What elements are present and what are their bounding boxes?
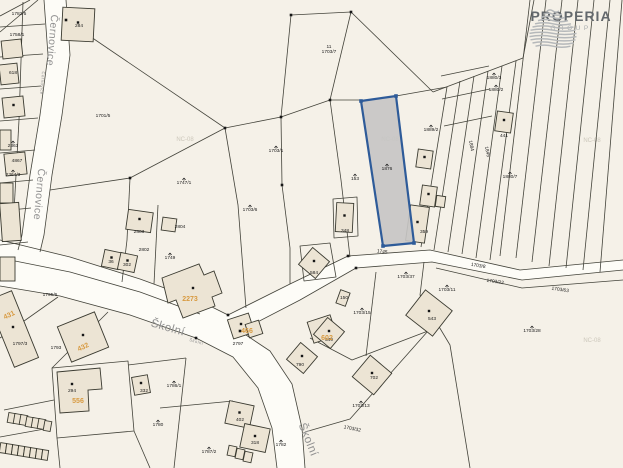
parcel-number: 284 [75,23,83,29]
parcel-number: 1703/13 [352,403,370,409]
parcel-label: 302 [123,262,131,268]
parcel-number: 1889/2 [424,127,439,133]
parcel-number: 2802 [139,247,150,253]
parcel-label: 150 [340,295,348,301]
vertex-marker [355,267,358,270]
building [0,202,21,241]
parcel-number: 790 [296,362,304,368]
parcel-label: 1782/5 [12,11,27,17]
parcel-number: 584 [310,270,318,276]
building-marker [240,323,242,325]
building-marker [12,104,14,106]
parcel-number: 1703/15 [353,310,371,316]
parcel-number: 618 [9,70,17,76]
parcel-label: 1701/5 [96,113,111,119]
parcel-number: 1749 [165,255,176,261]
building-marker [12,326,14,328]
parcel-number: 4867 [12,158,23,164]
parcel-number: 441 [500,133,508,139]
building [435,195,445,207]
parcel-label: 332 [140,388,148,394]
building-marker [126,259,128,261]
vertex-marker [65,19,68,22]
vertex-marker [350,11,353,14]
building-marker [82,334,84,336]
parcel-number: 318 [251,440,259,446]
building-marker [192,287,194,289]
building [420,185,438,207]
parcel-number: 1703/28 [523,328,541,334]
parcel-number: 1787/2 [202,449,217,455]
map-background [0,0,623,468]
parcel-label: 2802 [139,247,150,253]
parcel-number: 1747/1 [177,180,192,186]
parcel-label: 402 [236,417,244,423]
building [43,420,52,431]
parcel-number: 1780 [153,422,164,428]
highlight-node [394,94,398,98]
parcel-number: 1876 [382,166,393,172]
parcel-number: 1703/6 [243,207,258,213]
building [1,39,23,59]
parcel-number: 1758/1 [10,32,25,38]
parcel-label: 2803 [134,229,145,235]
parcel-number: 1880/3 [487,75,502,81]
parcel-number: 153 [351,176,359,182]
building-marker [503,119,505,121]
parcel-number: 543 [428,316,436,322]
vertex-marker [129,177,132,180]
parcel-number: 1880/7 [503,174,518,180]
map-viewer: NC-08NC-08NC-08NC-081782/51758/128461817… [0,0,623,468]
parcel-number: 2797 [233,341,244,347]
parcel-number: 302 [123,262,131,268]
highlight-node [381,244,385,248]
vertex-marker [280,116,283,119]
building-marker [428,310,430,312]
parcel-number: 2363 [8,143,19,149]
building [243,451,253,462]
house-number-label: 466 [241,328,253,335]
building-marker [427,193,429,195]
parcel-label: 618 [9,70,17,76]
parcel-number: 1703/11 [439,287,456,293]
building-marker [416,221,418,223]
highlight-node [359,99,363,103]
parcel-label: 36 [108,259,114,265]
house-number-label: 2273 [182,296,198,303]
parcel-label: 1797/3 [13,341,28,347]
building-marker [313,260,315,262]
house-number-label: 556 [72,398,84,405]
parcel-number: 348 [341,228,349,234]
parcel-number: 2803 [134,229,145,235]
parcel-number: 1703/1 [269,148,284,154]
vertex-marker [281,184,284,187]
vertex-marker [227,314,230,317]
map-watermark: NC-08 [176,137,194,143]
parcel-number: 1880/2 [489,87,504,93]
parcel-number: 1793 [51,345,62,351]
building-marker [371,372,373,374]
parcel-label: 790 [296,362,304,368]
parcel-number: 150 [340,295,348,301]
parcel-label: 294 [68,388,76,394]
parcel-label: 318 [251,440,259,446]
map-watermark: NC-08 [583,138,601,144]
map-watermark: NC-08 [583,338,601,344]
parcel-label: 2804 [175,224,186,230]
building [335,203,353,233]
parcel-number: 1782 [276,442,287,448]
parcel-label: 4867 [12,158,23,164]
building [495,111,514,133]
building-marker [110,256,112,258]
parcel-number: 294 [68,388,76,394]
building-marker [71,383,73,385]
parcel-number: 1797/3 [13,341,28,347]
parcel-number: 332 [140,388,148,394]
parcel-label: 543 [428,316,436,322]
building-marker [254,435,256,437]
parcel-number: 702 [370,375,378,381]
building-marker [423,156,425,158]
vertex-marker [224,127,227,130]
parcel-number: 36 [108,259,114,265]
parcel-number: 1703/37 [397,274,415,280]
building [41,450,48,461]
parcel-label: 1793 [51,345,62,351]
parcel-label: 1758/1 [10,32,25,38]
parcel-number: 2804 [175,224,186,230]
house-number-label: 602 [321,335,333,342]
parcel-label: 584 [310,270,318,276]
highlight-node [412,241,416,245]
building-marker [301,355,303,357]
parcel-label: 284 [75,23,83,29]
vertex-marker [329,99,332,102]
parcel-number: 402 [236,417,244,423]
building [2,96,25,118]
building [0,257,15,281]
parcel-label: 702 [370,375,378,381]
building-marker [140,382,142,384]
building [0,183,13,203]
building [416,149,433,169]
parcel-number: 2364/3 [6,172,21,178]
vertex-marker [290,14,293,17]
parcel-label: 441 [500,133,508,139]
parcel-number: 1701/5 [96,113,111,119]
building-marker [138,218,140,220]
parcel-label: 1795/6 [43,292,58,298]
parcel-label: 359 [420,229,428,235]
building [240,424,270,453]
parcel-number: 1786/1 [167,383,182,389]
vertex-marker [347,255,350,258]
parcel-number: 1795/6 [43,292,58,298]
parcel-number: 359 [420,229,428,235]
building-marker [343,214,345,216]
parcel-label: 2797 [233,341,244,347]
building-marker [238,411,240,413]
building-marker [328,330,330,332]
parcel-label: 348 [341,228,349,234]
parcel-number: 1782/5 [12,11,27,17]
